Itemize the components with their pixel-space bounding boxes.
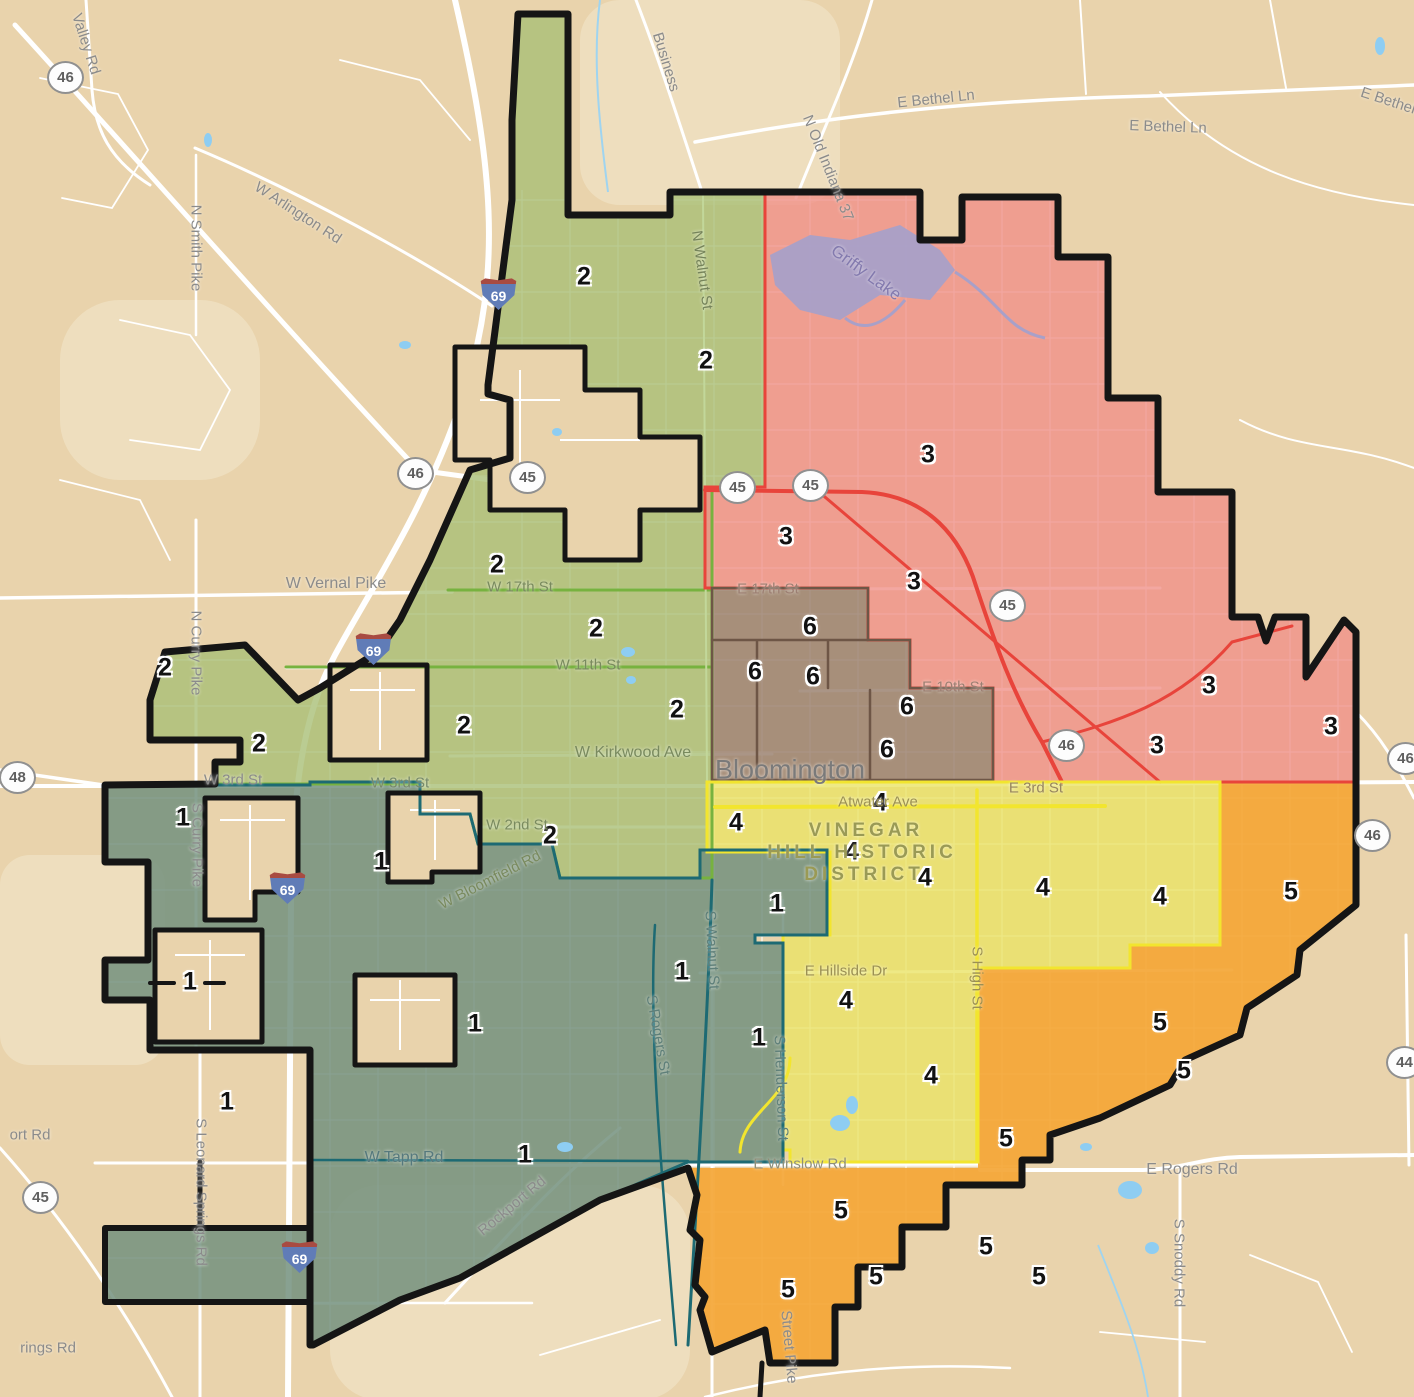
map-viewport[interactable]: 1111111112222222223333334444444455555555…: [0, 0, 1414, 1397]
district-1-region-southwest: [105, 1228, 310, 1302]
map-canvas: [0, 0, 1414, 1397]
